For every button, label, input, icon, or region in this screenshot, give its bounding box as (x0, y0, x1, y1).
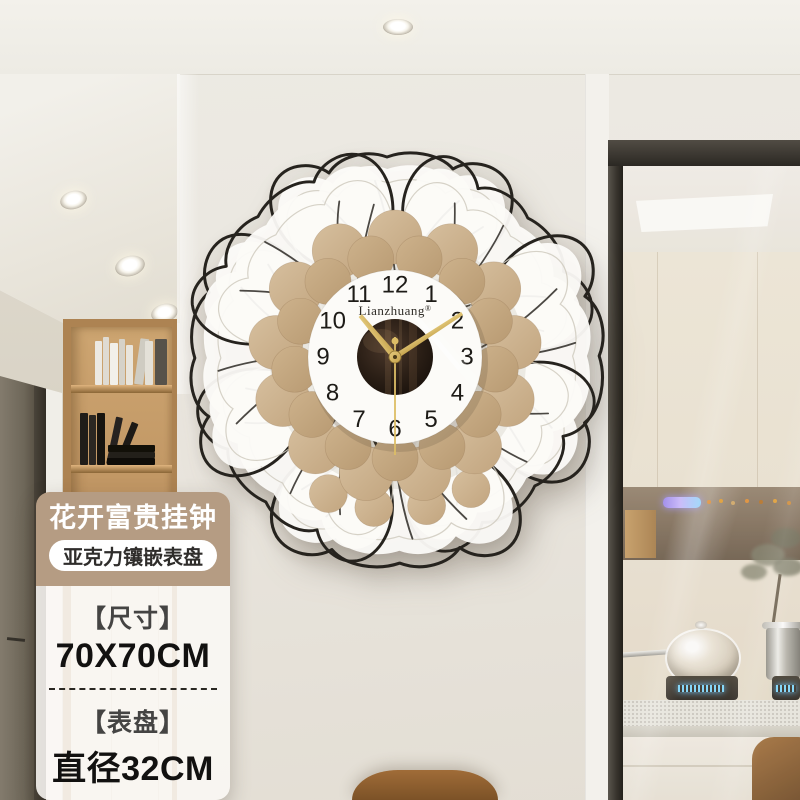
shelf-board (71, 465, 172, 473)
book-spine (89, 415, 96, 465)
product-info-card: 花开富贵挂钟 亚克力镶嵌表盘 【尺寸】 70X70CM 【表盘】 直径32CM (36, 492, 230, 800)
center-cap-dot (393, 355, 397, 359)
book-spine (80, 413, 88, 465)
book-spine (95, 341, 102, 385)
book-spine (155, 339, 167, 385)
glass-pot-knob (695, 621, 707, 629)
book-stack-horizontal (107, 458, 155, 465)
product-title: 花开富贵挂钟 (49, 504, 217, 534)
partition-frame-vertical (608, 140, 623, 800)
card-body: 【尺寸】 70X70CM 【表盘】 直径32CM (36, 586, 230, 800)
book-spine (110, 343, 118, 385)
spec-divider (49, 688, 217, 690)
book-row-lower (63, 393, 177, 465)
flower-wall-clock: 121234567891011 Lianzhuang® (195, 157, 595, 557)
chair-right (752, 737, 800, 800)
clock-numeral-10: 10 (319, 308, 346, 335)
stove-right (772, 676, 800, 700)
clock-numeral-4: 4 (451, 380, 464, 407)
kitchen-wall-panels (623, 252, 800, 492)
stove-led-display (678, 685, 724, 692)
wall-panel-seam (657, 252, 658, 490)
spec-size-label: 【尺寸】 (81, 599, 185, 635)
book-row-top (63, 319, 177, 385)
kitchen-through-glass (623, 166, 800, 800)
ceiling-downlight (383, 19, 413, 35)
card-header: 花开富贵挂钟 亚克力镶嵌表盘 (36, 492, 230, 586)
clock-numeral-5: 5 (424, 406, 437, 433)
shelf-board (71, 385, 172, 393)
chair-center (352, 770, 498, 800)
spec-dial-label: 【表盘】 (81, 703, 185, 739)
clock-numeral-12: 12 (382, 272, 409, 299)
clock-numeral-7: 7 (352, 406, 365, 433)
stove-led-display (776, 685, 796, 692)
spec-size-value: 70X70CM (56, 637, 211, 676)
wall-panel-seam (757, 252, 758, 490)
book-spine (97, 413, 105, 465)
countertop (623, 700, 800, 726)
book-spine (145, 341, 153, 385)
room-scene: 121234567891011 Lianzhuang® (0, 0, 800, 800)
book-stack-horizontal (108, 445, 155, 452)
book-spine (103, 337, 109, 385)
hood-controls (707, 499, 797, 507)
hood-display (663, 497, 701, 508)
partition-frame-horizontal (608, 140, 800, 166)
stove-left (666, 676, 738, 700)
brand-text: Lianzhuang® (359, 303, 432, 318)
clock-numeral-9: 9 (316, 344, 329, 371)
ceiling (0, 0, 800, 75)
spec-dial-value: 直径32CM (52, 741, 214, 790)
door-face (0, 376, 34, 800)
book-spine (119, 339, 125, 385)
steel-pot (766, 628, 800, 680)
clock-numeral-8: 8 (326, 380, 339, 407)
wood-spice-box (625, 510, 656, 558)
countertop-edge (623, 726, 800, 737)
product-subtitle-pill: 亚克力镶嵌表盘 (49, 540, 217, 571)
book-spine (126, 345, 133, 385)
